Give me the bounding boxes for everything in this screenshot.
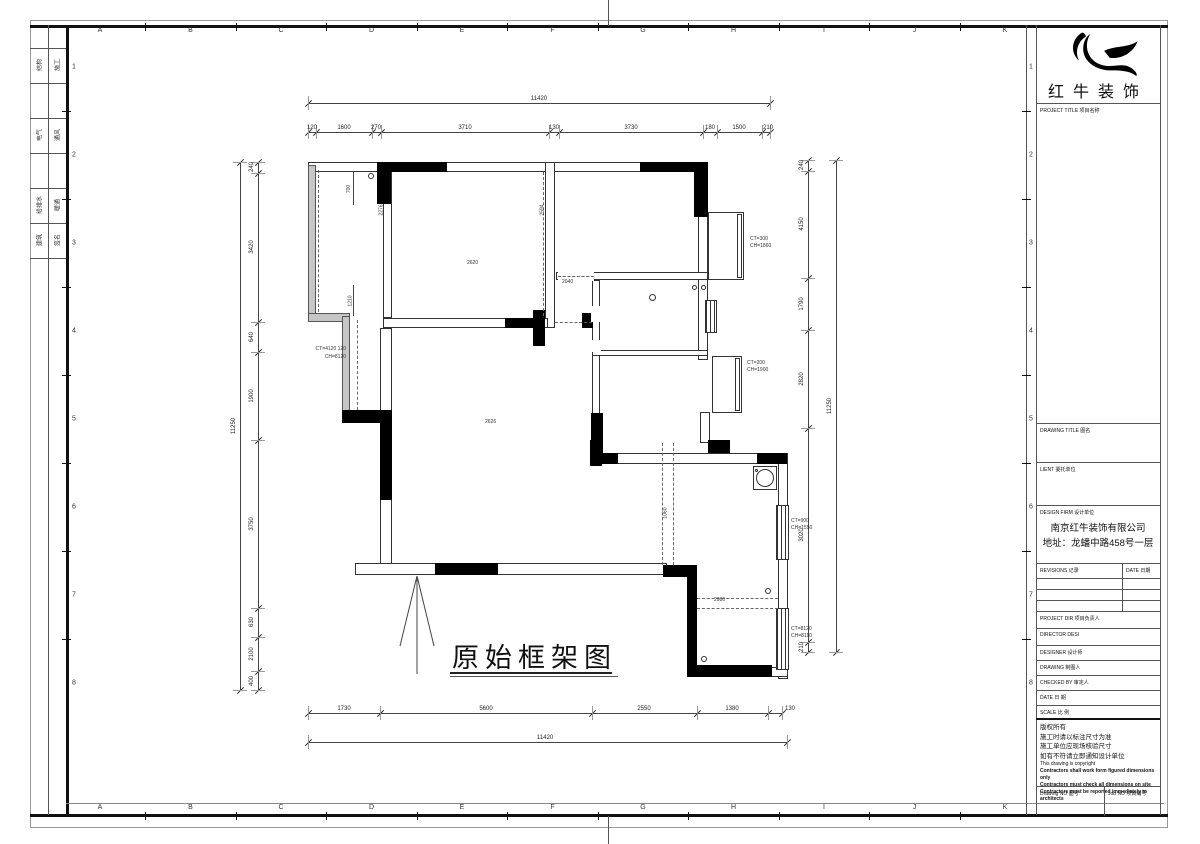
dim-label: 11420 bbox=[537, 735, 553, 741]
grid-number: 5 bbox=[1029, 416, 1033, 423]
dim-label: 3730 bbox=[624, 125, 637, 131]
grid-letter: H bbox=[731, 27, 736, 34]
signoff-label: 暖通 bbox=[53, 190, 62, 220]
drawing-no-label: Drawing NO 图号 bbox=[1040, 790, 1079, 797]
plan-annotation: 1210 bbox=[348, 295, 354, 306]
wall-segment bbox=[737, 214, 742, 278]
inner-dim-line bbox=[353, 172, 354, 205]
signoff-label: 结构 bbox=[35, 50, 44, 80]
frame-left bbox=[66, 25, 69, 817]
grid-tick bbox=[1022, 551, 1031, 552]
dim-label: 120 bbox=[307, 125, 317, 131]
wall-segment bbox=[687, 565, 697, 677]
dim-ext bbox=[251, 352, 265, 353]
plan-annotation: 2594 bbox=[540, 204, 546, 215]
design-firm-label: DESIGN FIRM 设计单位 bbox=[1040, 509, 1094, 516]
job-no-label: Job NO 项目编号 bbox=[1108, 790, 1146, 797]
plan-annotation: 2620 bbox=[467, 260, 478, 266]
dim-ext bbox=[787, 735, 788, 749]
plan-annotation: CT=200 bbox=[747, 360, 765, 366]
dim-ext bbox=[251, 322, 265, 323]
pipe-circle bbox=[756, 469, 774, 487]
wall-segment bbox=[591, 340, 601, 352]
wall-segment bbox=[591, 306, 601, 322]
grid-letter: G bbox=[640, 27, 645, 34]
grid-letter: I bbox=[823, 804, 825, 811]
dim-label: 130 bbox=[785, 706, 795, 712]
revisions-label: REVISIONS 记录 bbox=[1040, 567, 1079, 574]
titleblock-right-line bbox=[1160, 25, 1161, 815]
signoff-label: 电气 bbox=[35, 120, 44, 150]
plan-annotation: CH=8120 bbox=[288, 354, 346, 360]
signoff-label: 给排水 bbox=[35, 190, 44, 220]
plan-annotation: CT=900 bbox=[791, 518, 809, 524]
grid-tick bbox=[1022, 111, 1031, 112]
wall-segment bbox=[590, 453, 618, 464]
grid-tick bbox=[62, 199, 71, 200]
wall-segment bbox=[663, 565, 697, 577]
grid-number: 7 bbox=[1029, 592, 1033, 599]
wall-segment bbox=[355, 563, 667, 575]
plan-annotation: 2980 bbox=[714, 597, 725, 603]
client-label: LIENT 委托单位 bbox=[1040, 466, 1075, 473]
firm-address: 地址：龙蟠中路458号一层 bbox=[1036, 535, 1160, 549]
wall-segment bbox=[380, 420, 392, 500]
grid-letter: D bbox=[369, 27, 374, 34]
grid-tick bbox=[145, 812, 146, 820]
dim-label: 11250 bbox=[231, 418, 237, 434]
dim-label: 2550 bbox=[637, 706, 650, 712]
grid-letter: K bbox=[1003, 27, 1008, 34]
hidden-wall-dashed-line bbox=[357, 320, 358, 410]
plan-annotation: CT=8120 bbox=[791, 626, 812, 632]
grid-tick bbox=[326, 23, 327, 31]
dim-ext bbox=[559, 125, 560, 139]
grid-tick bbox=[62, 287, 71, 288]
plan-title: 原始框架图 bbox=[452, 636, 617, 675]
plan-title-underline bbox=[450, 676, 618, 677]
dim-label: 1900 bbox=[249, 389, 255, 402]
north-arrow-icon bbox=[392, 572, 442, 677]
plan-annotation: 2040 bbox=[562, 279, 573, 285]
dim-ext bbox=[801, 428, 815, 429]
dim-ext bbox=[829, 160, 843, 161]
grid-tick bbox=[145, 23, 146, 31]
grid-number: 6 bbox=[72, 504, 76, 511]
grid-tick bbox=[417, 23, 418, 31]
grid-tick bbox=[869, 23, 870, 31]
hidden-wall-dashed-line bbox=[555, 322, 592, 323]
signoff-label: 通风 bbox=[53, 120, 62, 150]
dim-ext bbox=[381, 125, 382, 139]
dim-label: 210 bbox=[799, 642, 805, 652]
hidden-wall-dashed-line bbox=[673, 443, 674, 565]
grid-letter: E bbox=[460, 27, 465, 34]
wall-segment bbox=[708, 440, 730, 453]
checked-by-label: CHECKED BY 审定人 bbox=[1040, 679, 1089, 686]
wall-segment bbox=[602, 453, 762, 464]
grid-letter: A bbox=[98, 27, 103, 34]
director-label: DIRECTOR DESI bbox=[1040, 632, 1079, 638]
grid-letter: B bbox=[188, 27, 193, 34]
dim-ext bbox=[251, 173, 265, 174]
grid-tick bbox=[417, 812, 418, 820]
grid-tick bbox=[960, 812, 961, 820]
drawing-area-right-line bbox=[1026, 25, 1027, 815]
dim-label: 4150 bbox=[799, 217, 805, 230]
wall-segment bbox=[342, 316, 350, 422]
wall-segment bbox=[776, 505, 789, 560]
grid-letter: J bbox=[913, 804, 917, 811]
wall-segment bbox=[592, 350, 708, 356]
dim-ext bbox=[251, 671, 265, 672]
grid-letter: D bbox=[369, 804, 374, 811]
grid-tick bbox=[1022, 287, 1031, 288]
grid-tick bbox=[62, 375, 71, 376]
titleblock-left-line bbox=[1036, 25, 1037, 815]
grid-tick bbox=[1022, 463, 1031, 464]
grid-number: 8 bbox=[72, 680, 76, 687]
grid-number: 3 bbox=[1029, 240, 1033, 247]
company-logo-icon bbox=[1058, 30, 1142, 76]
dim-label: 240 bbox=[799, 160, 805, 170]
grid-letter: I bbox=[823, 27, 825, 34]
wall-segment bbox=[757, 453, 787, 464]
plan-annotation: 700 bbox=[346, 185, 352, 193]
hidden-wall-dashed-line bbox=[318, 170, 319, 312]
hidden-wall-dashed-line bbox=[662, 443, 663, 565]
grid-number: 1 bbox=[1029, 64, 1033, 71]
firm-name: 南京红牛装饰有限公司 bbox=[1036, 520, 1160, 534]
hidden-wall-dashed-line bbox=[697, 598, 778, 599]
wall-segment bbox=[700, 412, 710, 443]
hidden-wall-dashed-line bbox=[697, 608, 778, 609]
dim-label: 1790 bbox=[799, 297, 805, 310]
grid-number: 3 bbox=[72, 240, 76, 247]
grid-number: 4 bbox=[72, 328, 76, 335]
pipe-circle bbox=[649, 294, 656, 301]
pipe-circle bbox=[692, 285, 697, 290]
dim-line bbox=[808, 160, 809, 652]
plan-annotation: CT=300 bbox=[750, 236, 768, 242]
grid-tick bbox=[326, 812, 327, 820]
dim-label: 5600 bbox=[479, 706, 492, 712]
dim-label: 3710 bbox=[458, 125, 471, 131]
dim-ext bbox=[380, 706, 381, 720]
grid-number: 2 bbox=[1029, 152, 1033, 159]
wall-segment bbox=[776, 608, 789, 670]
grid-letter: B bbox=[188, 804, 193, 811]
dim-line bbox=[308, 742, 787, 743]
pipe-circle bbox=[701, 656, 707, 662]
dim-line bbox=[308, 103, 770, 104]
grid-letter: H bbox=[731, 804, 736, 811]
grid-tick bbox=[869, 812, 870, 820]
grid-tick bbox=[688, 812, 689, 820]
dim-ext bbox=[801, 278, 815, 279]
grid-tick bbox=[507, 23, 508, 31]
dim-label: 240 bbox=[249, 162, 255, 172]
dim-ext bbox=[801, 652, 815, 653]
dim-label: 210 bbox=[763, 125, 773, 131]
grid-tick bbox=[1022, 375, 1031, 376]
plan-annotation: 2626 bbox=[485, 419, 496, 425]
wall-segment bbox=[705, 300, 717, 333]
grid-tick bbox=[779, 812, 780, 820]
dim-line bbox=[240, 162, 241, 690]
hidden-wall-dashed-line bbox=[558, 276, 594, 277]
grid-number: 2 bbox=[72, 152, 76, 159]
project-title-label: PROJECT TITLE 项目名称 bbox=[1040, 107, 1100, 114]
dim-label: 1380 bbox=[725, 706, 738, 712]
pipe-circle bbox=[701, 285, 706, 290]
dim-ext bbox=[801, 330, 815, 331]
dim-label: 1500 bbox=[732, 125, 745, 131]
dim-label: 130 bbox=[549, 125, 559, 131]
grid-tick bbox=[62, 639, 71, 640]
dim-label: 2820 bbox=[799, 372, 805, 385]
grid-tick bbox=[62, 463, 71, 464]
plan-annotation: CH=1900 bbox=[747, 367, 768, 373]
dim-label: 11420 bbox=[531, 96, 547, 102]
dim-ext bbox=[768, 706, 769, 720]
dim-ext bbox=[782, 706, 783, 720]
plan-annotation: CT=4120 120 bbox=[288, 346, 346, 352]
grid-tick bbox=[507, 812, 508, 820]
grid-tick bbox=[236, 23, 237, 31]
dim-ext bbox=[251, 440, 265, 441]
plan-annotation: 1060 bbox=[663, 507, 669, 518]
grid-number: 4 bbox=[1029, 328, 1033, 335]
dim-ext bbox=[717, 125, 718, 139]
wall-segment bbox=[545, 162, 555, 328]
grid-number: 5 bbox=[72, 416, 76, 423]
frame-top bbox=[30, 25, 1168, 28]
grid-number: 6 bbox=[1029, 504, 1033, 511]
wall-segment bbox=[735, 358, 740, 411]
scale-label: SCALE 比 例 bbox=[1040, 709, 1069, 716]
grid-letter: F bbox=[550, 27, 554, 34]
grid-tick bbox=[598, 812, 599, 820]
project-dir-label: PROJECT DIR 项目负责人 bbox=[1040, 615, 1100, 622]
grid-tick bbox=[779, 23, 780, 31]
dim-ext bbox=[829, 652, 843, 653]
dim-ext bbox=[251, 690, 265, 691]
dim-label: 11250 bbox=[827, 398, 833, 414]
drawing-sheet: 结构 施工 电气 通风 给排水 暖通 建筑 签名 原始框架图 114201201… bbox=[0, 0, 1200, 844]
pipe-circle bbox=[368, 173, 374, 179]
wall-segment bbox=[435, 563, 498, 575]
grid-tick bbox=[236, 812, 237, 820]
dim-ext bbox=[697, 706, 698, 720]
grid-number: 8 bbox=[1029, 680, 1033, 687]
drawing-label: DRAWING 制图人 bbox=[1040, 664, 1080, 671]
dim-label: 270 bbox=[371, 125, 381, 131]
wall-segment bbox=[308, 165, 316, 317]
fold-mark-bottom bbox=[608, 816, 609, 844]
logo-text: 红牛装饰 bbox=[1036, 78, 1160, 102]
date-label: DATE 日 期 bbox=[1040, 694, 1066, 701]
frame-bottom bbox=[30, 814, 1168, 817]
grid-tick bbox=[960, 23, 961, 31]
grid-letter: C bbox=[278, 27, 283, 34]
dim-label: 630 bbox=[249, 617, 255, 627]
grid-letter: A bbox=[98, 804, 103, 811]
grid-tick bbox=[1022, 639, 1031, 640]
dim-ext bbox=[233, 690, 247, 691]
pipe-circle bbox=[755, 469, 758, 472]
dim-label: 2100 bbox=[249, 647, 255, 660]
grid-tick bbox=[598, 23, 599, 31]
wall-segment bbox=[694, 162, 708, 217]
wall-segment bbox=[380, 328, 392, 412]
dim-ext bbox=[308, 706, 309, 720]
dim-ext bbox=[801, 171, 815, 172]
grid-tick bbox=[62, 111, 71, 112]
dim-ext bbox=[251, 608, 265, 609]
signoff-label: 施工 bbox=[53, 50, 62, 80]
dim-ext bbox=[703, 125, 704, 139]
grid-letter: F bbox=[550, 804, 554, 811]
dim-label: 400 bbox=[249, 676, 255, 686]
dim-line bbox=[258, 162, 259, 690]
grid-tick bbox=[62, 551, 71, 552]
grid-number: 1 bbox=[72, 64, 76, 71]
dim-ext bbox=[308, 96, 309, 110]
dim-line bbox=[836, 160, 837, 652]
signoff-label: 建筑 bbox=[35, 225, 44, 255]
dim-ext bbox=[233, 162, 247, 163]
grid-letter: K bbox=[1003, 804, 1008, 811]
wall-segment bbox=[377, 162, 391, 204]
hidden-wall-dashed-line bbox=[543, 172, 544, 316]
plan-annotation: CH=8110 bbox=[791, 633, 812, 639]
grid-number: 7 bbox=[72, 592, 76, 599]
designer-label: DESIGNER 设计师 bbox=[1040, 649, 1083, 656]
inner-bottom-line bbox=[66, 803, 1164, 804]
dim-label: 1730 bbox=[337, 706, 350, 712]
dim-label: 1600 bbox=[337, 125, 350, 131]
drawing-title-label: DRAWING TITLE 图名 bbox=[1040, 427, 1090, 434]
plan-annotation: 2276 bbox=[379, 204, 385, 215]
dim-label: 180 bbox=[705, 125, 715, 131]
grid-tick bbox=[688, 23, 689, 31]
grid-letter: G bbox=[640, 804, 645, 811]
signoff-label: 签名 bbox=[53, 225, 62, 255]
fold-mark-top bbox=[608, 0, 609, 26]
grid-letter: J bbox=[913, 27, 917, 34]
grid-letter: E bbox=[460, 804, 465, 811]
grid-tick bbox=[1022, 199, 1031, 200]
grid-letter: C bbox=[278, 804, 283, 811]
plan-annotation: CH=1860 bbox=[750, 243, 771, 249]
dim-label: 3750 bbox=[249, 517, 255, 530]
dim-label: 3420 bbox=[249, 240, 255, 253]
dim-ext bbox=[592, 706, 593, 720]
dim-label: 640 bbox=[249, 332, 255, 342]
plan-annotation: CH=1550 bbox=[791, 525, 812, 531]
dim-ext bbox=[251, 637, 265, 638]
plan-title-underline bbox=[450, 672, 612, 674]
pipe-circle bbox=[765, 588, 771, 594]
date-col-label: DATE 日期 bbox=[1126, 567, 1150, 574]
wall-segment bbox=[690, 665, 772, 677]
dim-ext bbox=[308, 735, 309, 749]
dim-ext bbox=[770, 96, 771, 110]
